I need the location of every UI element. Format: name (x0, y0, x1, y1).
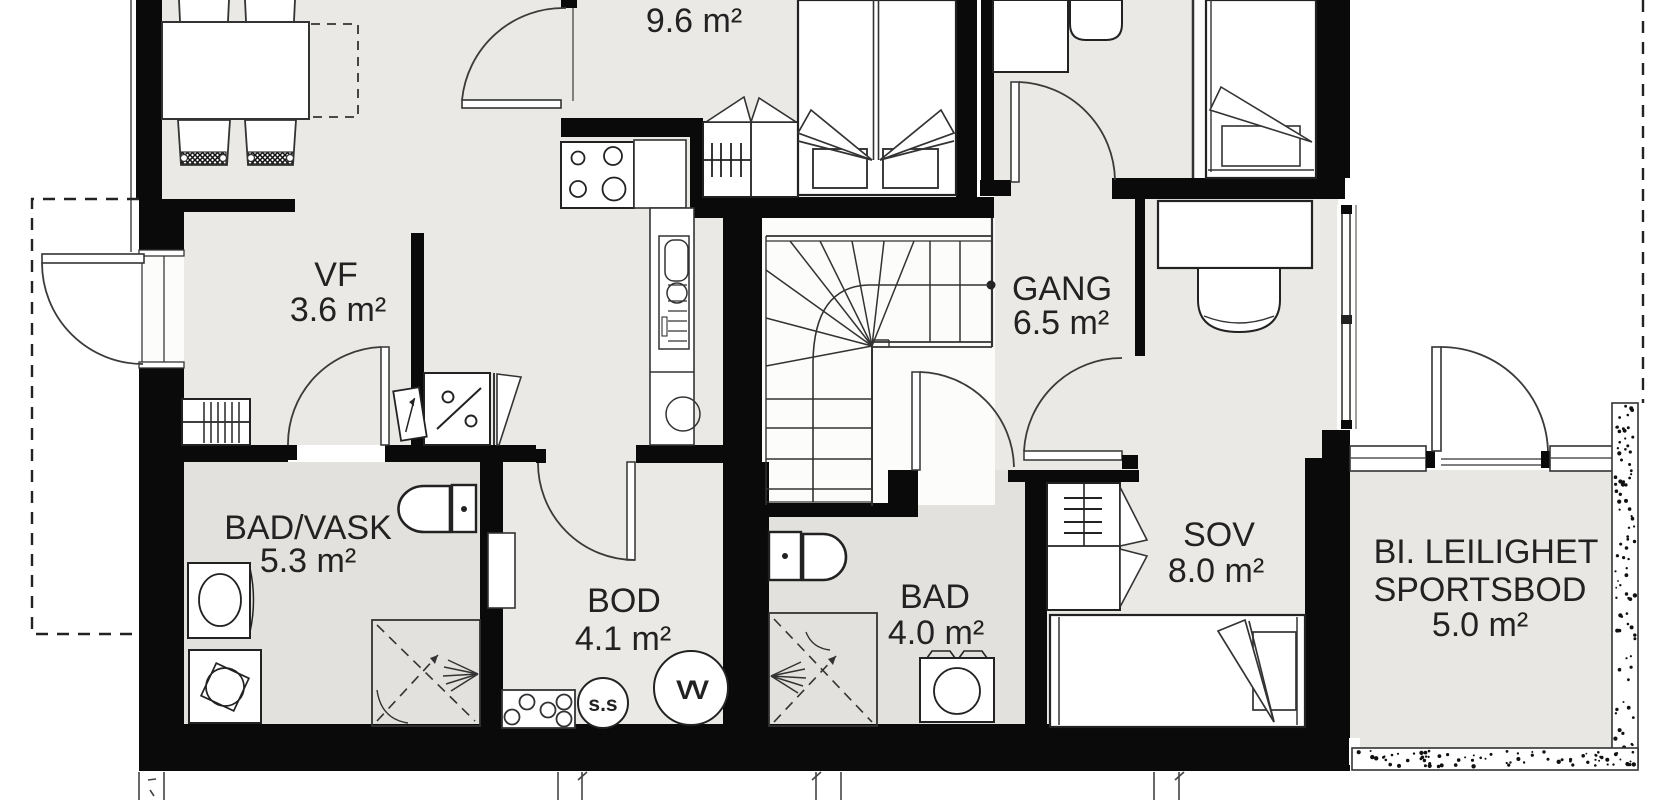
svg-text:VV: VV (676, 675, 709, 705)
svg-text:4.0 m²: 4.0 m² (888, 614, 984, 652)
svg-text:3.6 m²: 3.6 m² (290, 291, 386, 329)
svg-text:BI. LEILIGHET: BI. LEILIGHET (1374, 533, 1599, 571)
svg-text:9.6 m²: 9.6 m² (646, 2, 742, 40)
svg-text:5.0 m²: 5.0 m² (1432, 606, 1528, 644)
svg-text:6.5 m²: 6.5 m² (1013, 304, 1109, 342)
svg-text:s.s: s.s (588, 693, 617, 716)
svg-text:GANG: GANG (1012, 270, 1112, 308)
svg-text:5.3 m²: 5.3 m² (260, 542, 356, 580)
svg-text:BAD: BAD (900, 578, 970, 616)
svg-text:SOV: SOV (1183, 516, 1255, 554)
svg-text:4.1 m²: 4.1 m² (575, 620, 671, 658)
svg-text:8.0 m²: 8.0 m² (1168, 552, 1264, 590)
svg-text:BOD: BOD (587, 582, 661, 620)
svg-text:VF: VF (314, 256, 357, 294)
svg-text:SPORTSBOD: SPORTSBOD (1374, 571, 1587, 609)
